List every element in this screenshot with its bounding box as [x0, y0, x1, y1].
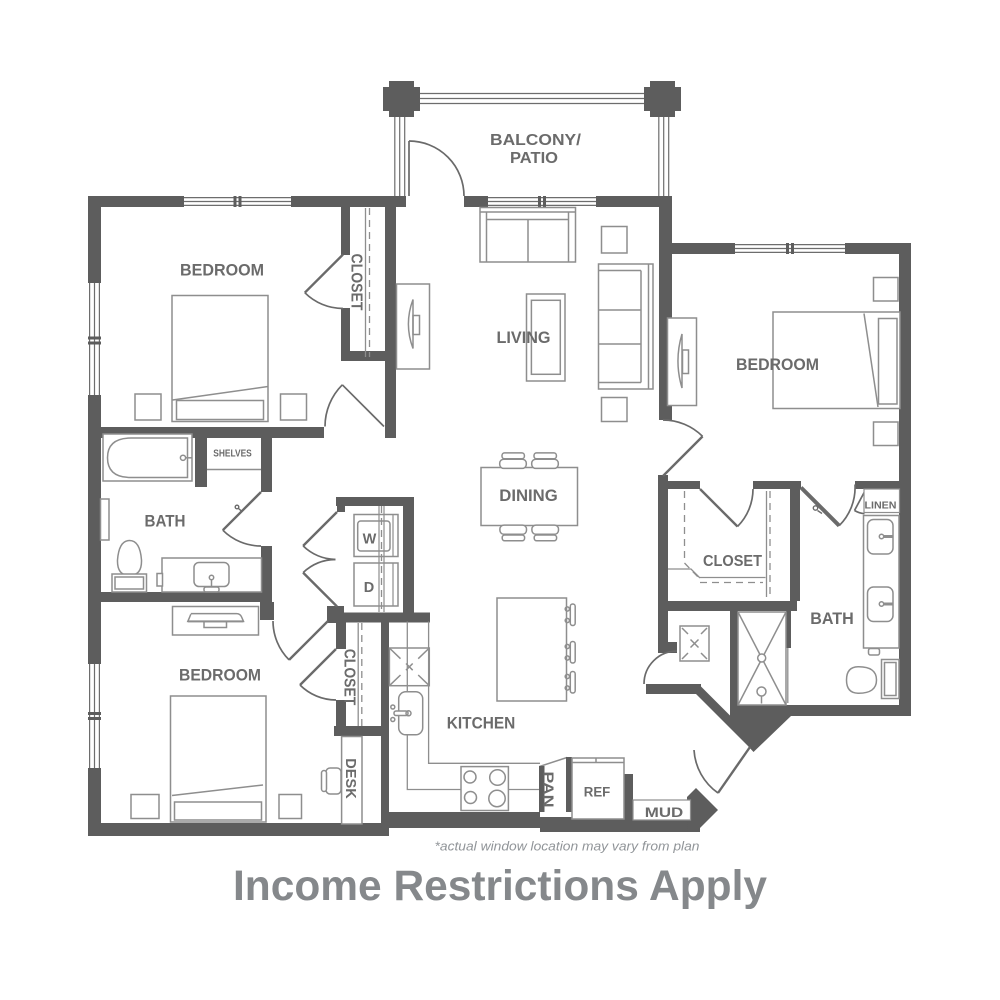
svg-text:SHELVES: SHELVES: [213, 449, 252, 460]
svg-text:BEDROOM: BEDROOM: [180, 262, 264, 280]
svg-text:KITCHEN: KITCHEN: [447, 715, 516, 733]
svg-text:LINEN: LINEN: [865, 500, 897, 512]
svg-text:BATH: BATH: [145, 513, 186, 531]
svg-text:PATIO: PATIO: [510, 150, 558, 167]
svg-text:REF: REF: [584, 785, 611, 800]
svg-text:BATH: BATH: [810, 610, 854, 628]
svg-text:BALCONY/: BALCONY/: [490, 132, 582, 149]
svg-text:CLOSET: CLOSET: [703, 553, 762, 570]
svg-text:*actual window location may va: *actual window location may vary from pl…: [435, 839, 700, 854]
svg-text:D: D: [364, 580, 374, 596]
svg-text:LIVING: LIVING: [497, 329, 551, 347]
svg-text:DESK: DESK: [342, 758, 359, 799]
svg-text:BEDROOM: BEDROOM: [736, 356, 819, 374]
svg-text:CLOSET: CLOSET: [348, 254, 365, 311]
svg-text:DINING: DINING: [499, 487, 558, 505]
svg-text:PAN: PAN: [540, 772, 557, 808]
svg-text:MUD: MUD: [645, 805, 684, 820]
svg-text:W: W: [363, 532, 377, 548]
svg-text:BEDROOM: BEDROOM: [179, 667, 261, 685]
svg-text:CLOSET: CLOSET: [341, 649, 358, 706]
svg-text:Income Restrictions Apply: Income Restrictions Apply: [233, 862, 767, 910]
